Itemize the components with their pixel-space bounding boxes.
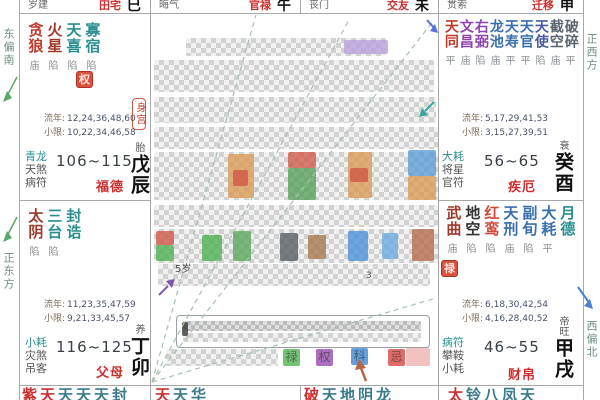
- star-brightness: 庙: [30, 57, 40, 72]
- age-range: 106~115: [56, 152, 133, 170]
- palace-cell-chou-stars-partial[interactable]: 天天华: [155, 386, 295, 400]
- liunian-values: 12,24,36,48,60: [67, 114, 136, 124]
- liunian-values: 11,23,35,47,59: [67, 300, 136, 310]
- god-label: 官符: [442, 176, 464, 189]
- green-arrow-icon: [6, 217, 17, 238]
- xiaoxian-years: 小限:9,21,33,45,57: [44, 311, 130, 324]
- star-brightness: 陷: [30, 243, 40, 258]
- mosaic-patch-green: [233, 231, 251, 261]
- age-note-text: 5岁: [175, 260, 191, 275]
- direction-label-west: 正西方: [586, 33, 597, 72]
- star-name: 贪狼: [27, 22, 43, 54]
- palace-name: 财帛: [508, 364, 536, 383]
- star-brightness: 平: [506, 52, 516, 67]
- star-name: 天喜: [65, 22, 81, 54]
- xiaoxian-label: 小限:: [462, 128, 483, 138]
- star-columns: 太阴陷 三台陷 封诰: [25, 208, 82, 258]
- sihua-legend-lu: 禄: [283, 349, 300, 366]
- mosaic-block: [154, 60, 434, 92]
- star-brightness: 庙: [461, 52, 471, 67]
- star-chars: 天华: [173, 386, 209, 400]
- liunian-label: 流年:: [462, 114, 483, 124]
- mosaic-block: [154, 127, 438, 149]
- branch-column: 胎 戊辰: [128, 142, 148, 196]
- star-name: 寡宿: [84, 22, 100, 54]
- star-brightness: 庙: [551, 52, 561, 67]
- xiaoxian-label: 小限:: [44, 128, 65, 138]
- minor-star-label: 晦气: [159, 0, 179, 12]
- star-brightness: 平: [446, 52, 456, 67]
- god-label: 病符: [25, 176, 47, 189]
- grid-line-col1: [150, 0, 151, 400]
- mosaic-patch-red: [350, 168, 368, 182]
- branch-char: 午: [277, 0, 291, 13]
- god-label: 吊客: [25, 362, 47, 375]
- star-name: 武曲: [445, 205, 461, 237]
- star-brightness: 平: [566, 52, 576, 67]
- star-columns: 贪狼庙 火星陷 天喜陷 寡宿陷: [25, 22, 101, 72]
- mosaic-patch-red: [406, 348, 430, 366]
- green-arrowhead-icon: [3, 231, 12, 242]
- minor-star-label: 岁建: [28, 0, 48, 12]
- star-brightness: 陷: [87, 57, 97, 72]
- star-name: 天官: [518, 19, 533, 49]
- palace-name: 交友: [387, 0, 409, 12]
- star-name: 截空: [548, 19, 563, 49]
- mosaic-patch-red: [156, 231, 174, 245]
- palace-name: 田宅: [99, 0, 121, 12]
- star-brightness: 陷: [68, 57, 78, 72]
- xiaoxian-values: 4,16,28,40,52: [485, 314, 548, 324]
- liunian-label: 流年:: [462, 300, 483, 310]
- god-label: 小耗: [442, 362, 464, 375]
- star-brightness: 平: [543, 240, 553, 255]
- liunian-years: 流年:11,23,35,47,59: [44, 297, 136, 310]
- star-brightness: 庙: [491, 52, 501, 67]
- star-chars: 紫天: [22, 386, 58, 400]
- xiaoxian-values: 10,22,34,46,58: [67, 128, 136, 138]
- direction-label-east: 正东方: [3, 252, 14, 291]
- liunian-years: 流年:6,18,30,42,54: [462, 297, 548, 310]
- god-label: 青龙: [25, 150, 47, 163]
- star-name: 大耗: [540, 205, 556, 237]
- mosaic-patch-dark: [182, 322, 188, 336]
- legend-box: [176, 315, 430, 348]
- mosaic-block: [183, 321, 421, 331]
- life-stage: 胎: [133, 142, 143, 152]
- life-stage: 衰: [557, 140, 567, 150]
- age-range: 116~125: [56, 338, 133, 356]
- sihua-quan-badge: 权: [76, 71, 93, 88]
- mosaic-block: [154, 97, 436, 123]
- star-name: 天刑: [502, 205, 518, 237]
- mosaic-patch-orange: [408, 176, 436, 200]
- star-name: 地空: [464, 205, 480, 237]
- minor-gods-stack: 小耗 灾煞 吊客: [25, 336, 47, 375]
- star-name: 月德: [559, 205, 575, 237]
- stem-branch: 戊辰: [128, 154, 148, 196]
- minor-star-label: 丧门: [309, 0, 329, 12]
- star-chars: 破: [304, 386, 322, 400]
- palace-name: 官禄: [249, 0, 271, 12]
- xiaoxian-label: 小限:: [44, 314, 65, 324]
- stem-branch: 丁卯: [128, 336, 148, 378]
- palace-name: 父母: [96, 362, 124, 381]
- star-brightness: 陷: [467, 240, 477, 255]
- liunian-years: 流年:5,17,29,41,53: [462, 111, 548, 124]
- palace-cell-xu-caibo[interactable]: 武曲庙 地空陷 红鸾陷 天刑庙 副旬陷 大耗平 月德 禄 流年:6,18,30,…: [440, 200, 583, 385]
- star-name: 红鸾: [483, 205, 499, 237]
- star-chars: 天地阴龙: [322, 386, 394, 400]
- star-brightness: 平: [521, 52, 531, 67]
- mosaic-patch-red: [288, 152, 316, 168]
- god-label: 病符: [442, 336, 464, 349]
- mosaic-patch-red: [233, 170, 248, 186]
- mosaic-block: [183, 333, 421, 342]
- palace-cell-shen-qianyi[interactable]: 贯索 迁移 申: [439, 0, 582, 13]
- star-name: 文昌: [458, 19, 473, 49]
- blue-annotation-arrowhead-icon: [430, 24, 438, 33]
- palace-cell-chen-fude[interactable]: 贪狼庙 火星陷 天喜陷 寡宿陷 权 身宫 流年:12,24,36,48,60 小…: [20, 14, 150, 200]
- xiaoxian-values: 9,21,33,45,57: [67, 314, 130, 324]
- xiaoxian-years: 小限:3,15,27,39,51: [462, 125, 548, 138]
- palace-cell-mao-fumu[interactable]: 太阴陷 三台陷 封诰 流年:11,23,35,47,59 小限:9,21,33,…: [20, 200, 150, 385]
- star-brightness: 庙: [505, 240, 515, 255]
- xiaoxian-years: 小限:10,22,34,46,58: [44, 125, 136, 138]
- mosaic-block: [154, 205, 438, 227]
- stem-branch: 甲戌: [552, 338, 572, 380]
- star-name: 三台: [46, 208, 62, 240]
- mosaic-block: [166, 349, 278, 366]
- stem-branch: 癸酉: [552, 152, 572, 194]
- grid-line-bottom-mid: [300, 385, 301, 400]
- god-label: 灾煞: [25, 349, 47, 362]
- mosaic-patch-green: [156, 245, 174, 261]
- mosaic-block: [158, 264, 430, 286]
- star-chars: 天: [155, 386, 173, 400]
- god-label: 天煞: [25, 163, 47, 176]
- star-name: 封诰: [65, 208, 81, 240]
- age-range: 56~65: [484, 152, 540, 170]
- minor-star-label: 贯索: [447, 0, 467, 12]
- star-columns: 天同平 文昌庙 右弼陷 龙池庙 天寿平 天官平 天使陷 截空庙 破碎平: [443, 19, 578, 67]
- minor-gods-stack: 青龙 天煞 病符: [25, 150, 47, 189]
- green-arrowhead-icon: [3, 91, 12, 102]
- god-label: 攀鞍: [442, 349, 464, 362]
- star-name: 右弼: [473, 19, 488, 49]
- mosaic-patch-brown: [308, 235, 326, 259]
- minor-gods-stack: 大耗 将星 官符: [442, 150, 464, 189]
- liunian-label: 流年:: [44, 300, 65, 310]
- sihua-legend-ke: 科: [351, 348, 368, 365]
- direction-label-east-south: 东偏南: [3, 28, 14, 67]
- palace-cell-si-tianzhai[interactable]: 岁建 田宅 巳: [20, 0, 149, 13]
- green-arrow-icon: [6, 77, 17, 98]
- palace-cell-zi-stars-partial[interactable]: 破天地阴龙: [304, 386, 434, 400]
- liunian-values: 5,17,29,41,53: [485, 114, 548, 124]
- ziwei-doushu-chart: 东偏南 正东方 正西方 西偏北 岁建 田宅 巳 晦气 官禄 午 丧门 交友 未 …: [0, 0, 600, 400]
- liunian-values: 6,18,30,42,54: [485, 300, 548, 310]
- mosaic-patch-dark: [280, 233, 298, 261]
- palace-name: 福德: [96, 176, 124, 195]
- branch-column: 帝旺 甲戌: [552, 316, 572, 380]
- number-note-text: 3: [366, 271, 372, 281]
- liunian-label: 流年:: [44, 114, 65, 124]
- god-label: 将星: [442, 163, 464, 176]
- mosaic-patch-blue: [382, 233, 398, 259]
- minor-gods-stack: 病符 攀鞍 小耗: [442, 336, 464, 375]
- star-brightness: 陷: [49, 57, 59, 72]
- star-brightness: 陷: [536, 52, 546, 67]
- blue-arrowhead-icon: [584, 299, 593, 309]
- sihua-legend-quan: 权: [316, 349, 333, 366]
- branch-column: 衰 癸酉: [552, 140, 572, 194]
- star-name: 破碎: [563, 19, 578, 49]
- star-name: 天使: [533, 19, 548, 49]
- star-brightness: 陷: [476, 52, 486, 67]
- direction-label-west-north: 西偏北: [586, 320, 597, 359]
- god-label: 大耗: [442, 150, 464, 163]
- sihua-lu-badge: 禄: [441, 260, 458, 277]
- star-name: 副旬: [521, 205, 537, 237]
- palace-name: 疾厄: [508, 176, 536, 195]
- purple-annotation-arrow-icon: [159, 286, 168, 295]
- life-stage: 养: [133, 324, 143, 334]
- mosaic-patch-green: [202, 235, 222, 261]
- liunian-years: 流年:12,24,36,48,60: [44, 111, 136, 124]
- god-label: 小耗: [25, 336, 47, 349]
- star-brightness: 陷: [486, 240, 496, 255]
- age-range: 46~55: [484, 338, 540, 356]
- star-brightness: 陷: [49, 243, 59, 258]
- red-annotation-arrow-icon: [361, 368, 366, 381]
- blue-annotation-arrow-icon: [427, 20, 435, 29]
- mosaic-patch-blue: [348, 231, 368, 261]
- palace-cell-wu-guanlu[interactable]: 晦气 官禄 午: [151, 0, 299, 13]
- mosaic-patch-blue: [408, 150, 436, 176]
- star-name: 天同: [443, 19, 458, 49]
- star-name: 龙池: [488, 19, 503, 49]
- palace-name: 迁移: [532, 0, 554, 12]
- palace-cell-wei-jiaoyou[interactable]: 丧门 交友 未: [301, 0, 437, 13]
- star-name: 火星: [46, 22, 62, 54]
- xiaoxian-years: 小限:4,16,28,40,52: [462, 311, 548, 324]
- palace-cell-hai-stars-partial[interactable]: 太铃八凤天: [448, 386, 578, 400]
- branch-char: 申: [560, 0, 574, 13]
- mosaic-patch-brown: [412, 229, 434, 261]
- star-brightness: 陷: [524, 240, 534, 255]
- sihua-legend-ji: 忌: [388, 349, 405, 366]
- branch-char: 巳: [127, 0, 141, 13]
- grid-line-right: [583, 0, 584, 400]
- xiaoxian-values: 3,15,27,39,51: [485, 128, 548, 138]
- mosaic-patch-purple: [344, 40, 388, 54]
- star-brightness: 庙: [448, 240, 458, 255]
- star-chars: 太: [448, 386, 466, 400]
- xiaoxian-label: 小限:: [462, 314, 483, 324]
- branch-column: 养 丁卯: [128, 324, 148, 378]
- star-columns: 武曲庙 地空陷 红鸾陷 天刑庙 副旬陷 大耗平 月德: [443, 205, 576, 255]
- star-name: 天寿: [503, 19, 518, 49]
- star-chars: 铃八凤天: [466, 386, 538, 400]
- palace-cell-yin-stars-partial[interactable]: 紫天天天天封天: [22, 386, 148, 400]
- branch-char: 未: [415, 0, 429, 13]
- life-stage: 帝旺: [557, 316, 567, 336]
- star-name: 太阴: [27, 208, 43, 240]
- mosaic-patch-green: [288, 168, 316, 200]
- palace-cell-you-jie[interactable]: 天同平 文昌庙 右弼陷 龙池庙 天寿平 天官平 天使陷 截空庙 破碎平 流年:5…: [440, 14, 583, 200]
